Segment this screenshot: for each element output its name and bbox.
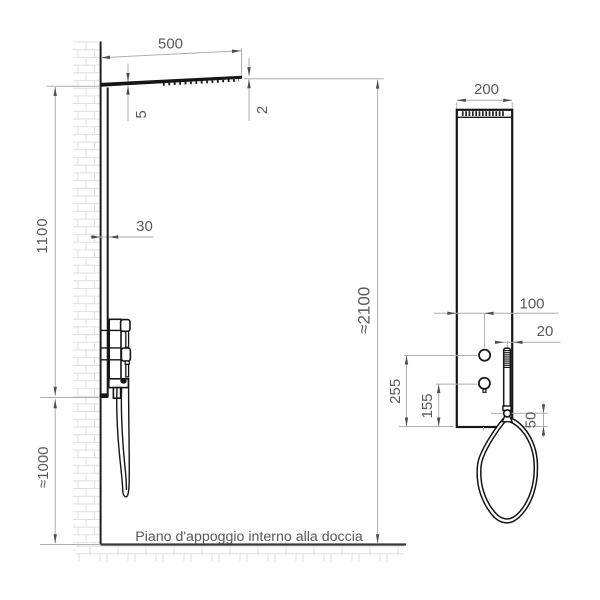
svg-text:2: 2	[254, 106, 271, 114]
svg-text:200: 200	[474, 81, 499, 98]
svg-text:500: 500	[158, 36, 183, 53]
svg-text:30: 30	[136, 218, 153, 235]
svg-text:Piano d'appoggio interno alla: Piano d'appoggio interno alla doccia	[135, 529, 363, 545]
svg-text:5: 5	[133, 110, 150, 118]
svg-text:≈2100: ≈2100	[355, 287, 374, 334]
svg-text:255: 255	[387, 379, 404, 404]
svg-text:100: 100	[519, 296, 544, 313]
svg-text:20: 20	[537, 323, 554, 340]
svg-text:1100: 1100	[34, 217, 51, 253]
svg-text:50: 50	[523, 412, 540, 429]
svg-text:155: 155	[419, 393, 436, 418]
svg-text:≈1000: ≈1000	[35, 446, 52, 488]
